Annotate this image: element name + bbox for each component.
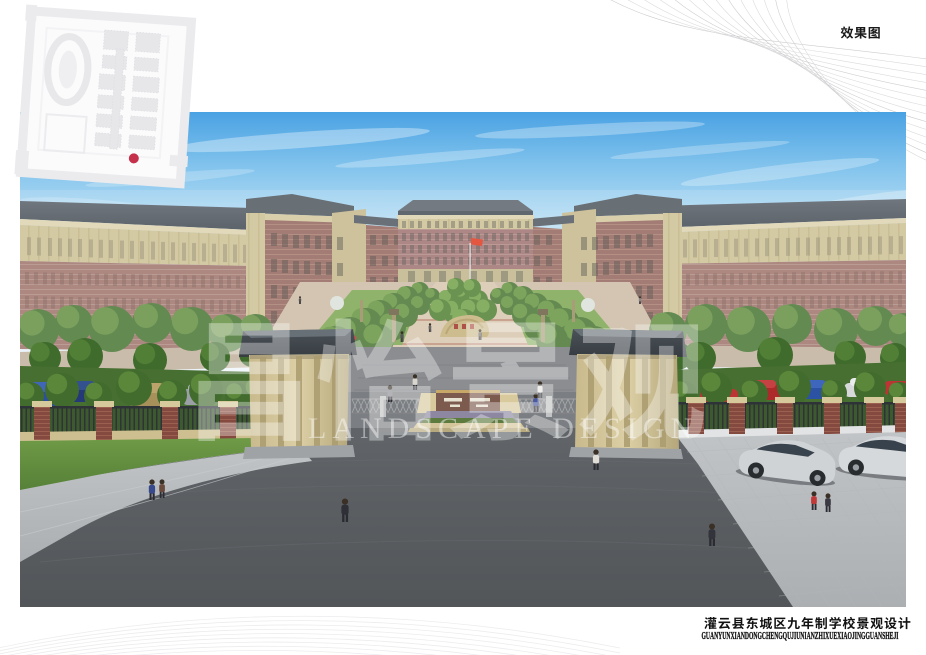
svg-text:LANDSCAPE DESIGN: LANDSCAPE DESIGN: [308, 412, 698, 445]
svg-text:GUANYUNXIANDONGCHENGQUJIUNIANZ: GUANYUNXIANDONGCHENGQUJIUNIANZHIXUEXIAOJ…: [702, 631, 899, 642]
